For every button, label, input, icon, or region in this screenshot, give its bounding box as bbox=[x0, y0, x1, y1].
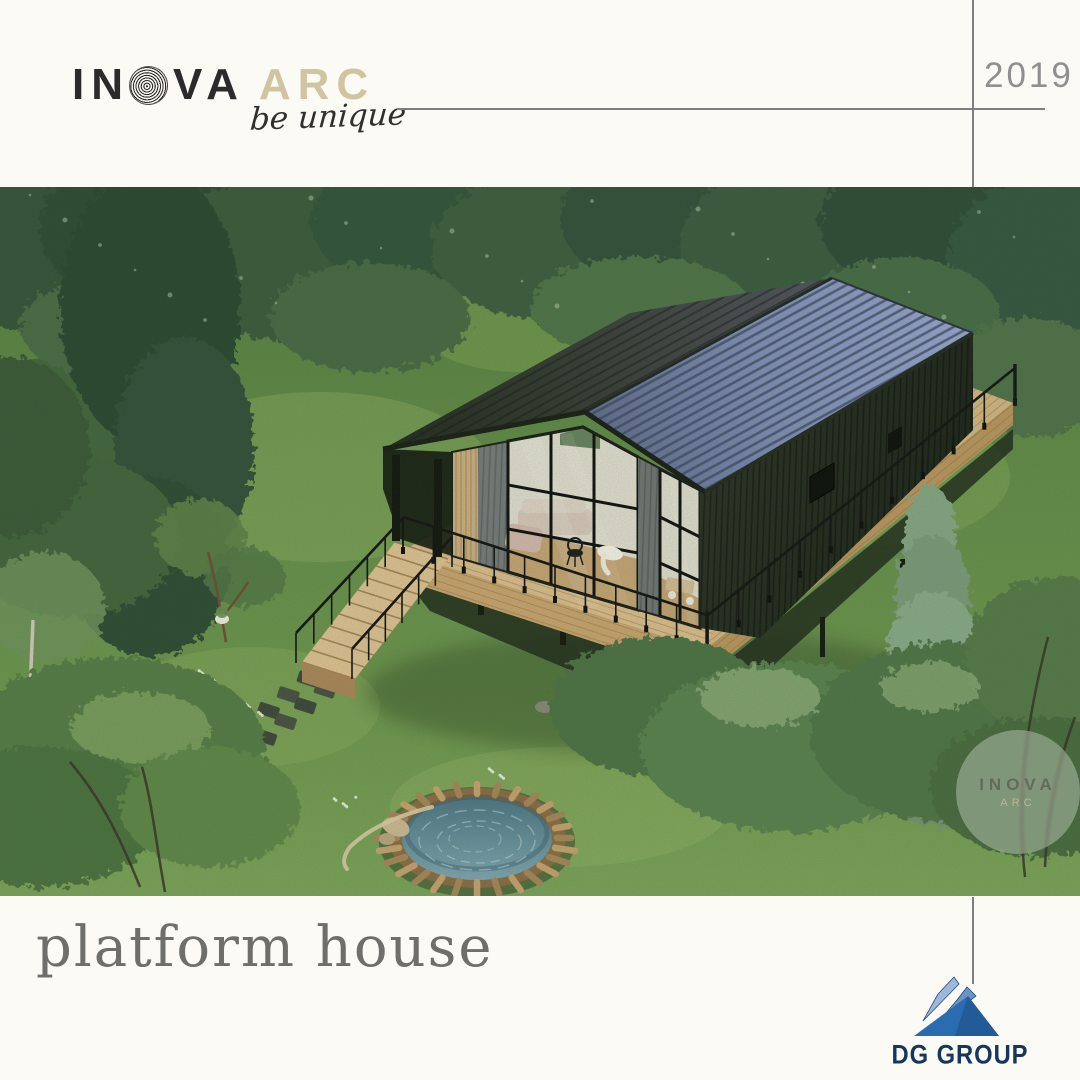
house-render-illustration bbox=[0, 187, 1080, 896]
logo-text-va: VA bbox=[173, 60, 245, 110]
inova-watermark: INOVA ARC bbox=[956, 730, 1080, 854]
vertical-divider-top bbox=[972, 0, 974, 187]
horizontal-divider bbox=[397, 108, 1045, 110]
watermark-subtext: ARC bbox=[1000, 797, 1035, 809]
year-label: 2019 bbox=[984, 56, 1074, 96]
watermark-text: INOVA bbox=[979, 775, 1057, 795]
dg-group-name: DG GROUP bbox=[884, 1040, 1036, 1071]
project-title: platform house bbox=[36, 915, 494, 980]
dg-group-logo bbox=[895, 973, 1025, 1039]
logo-text-in: IN bbox=[72, 60, 130, 110]
grass-texture bbox=[0, 187, 1080, 896]
logo-tagline: be unique bbox=[249, 96, 407, 138]
vertical-divider-bottom bbox=[972, 897, 974, 984]
fingerprint-icon bbox=[129, 66, 168, 105]
poster-canvas: INVAARC be unique 2019 bbox=[0, 0, 1080, 1080]
